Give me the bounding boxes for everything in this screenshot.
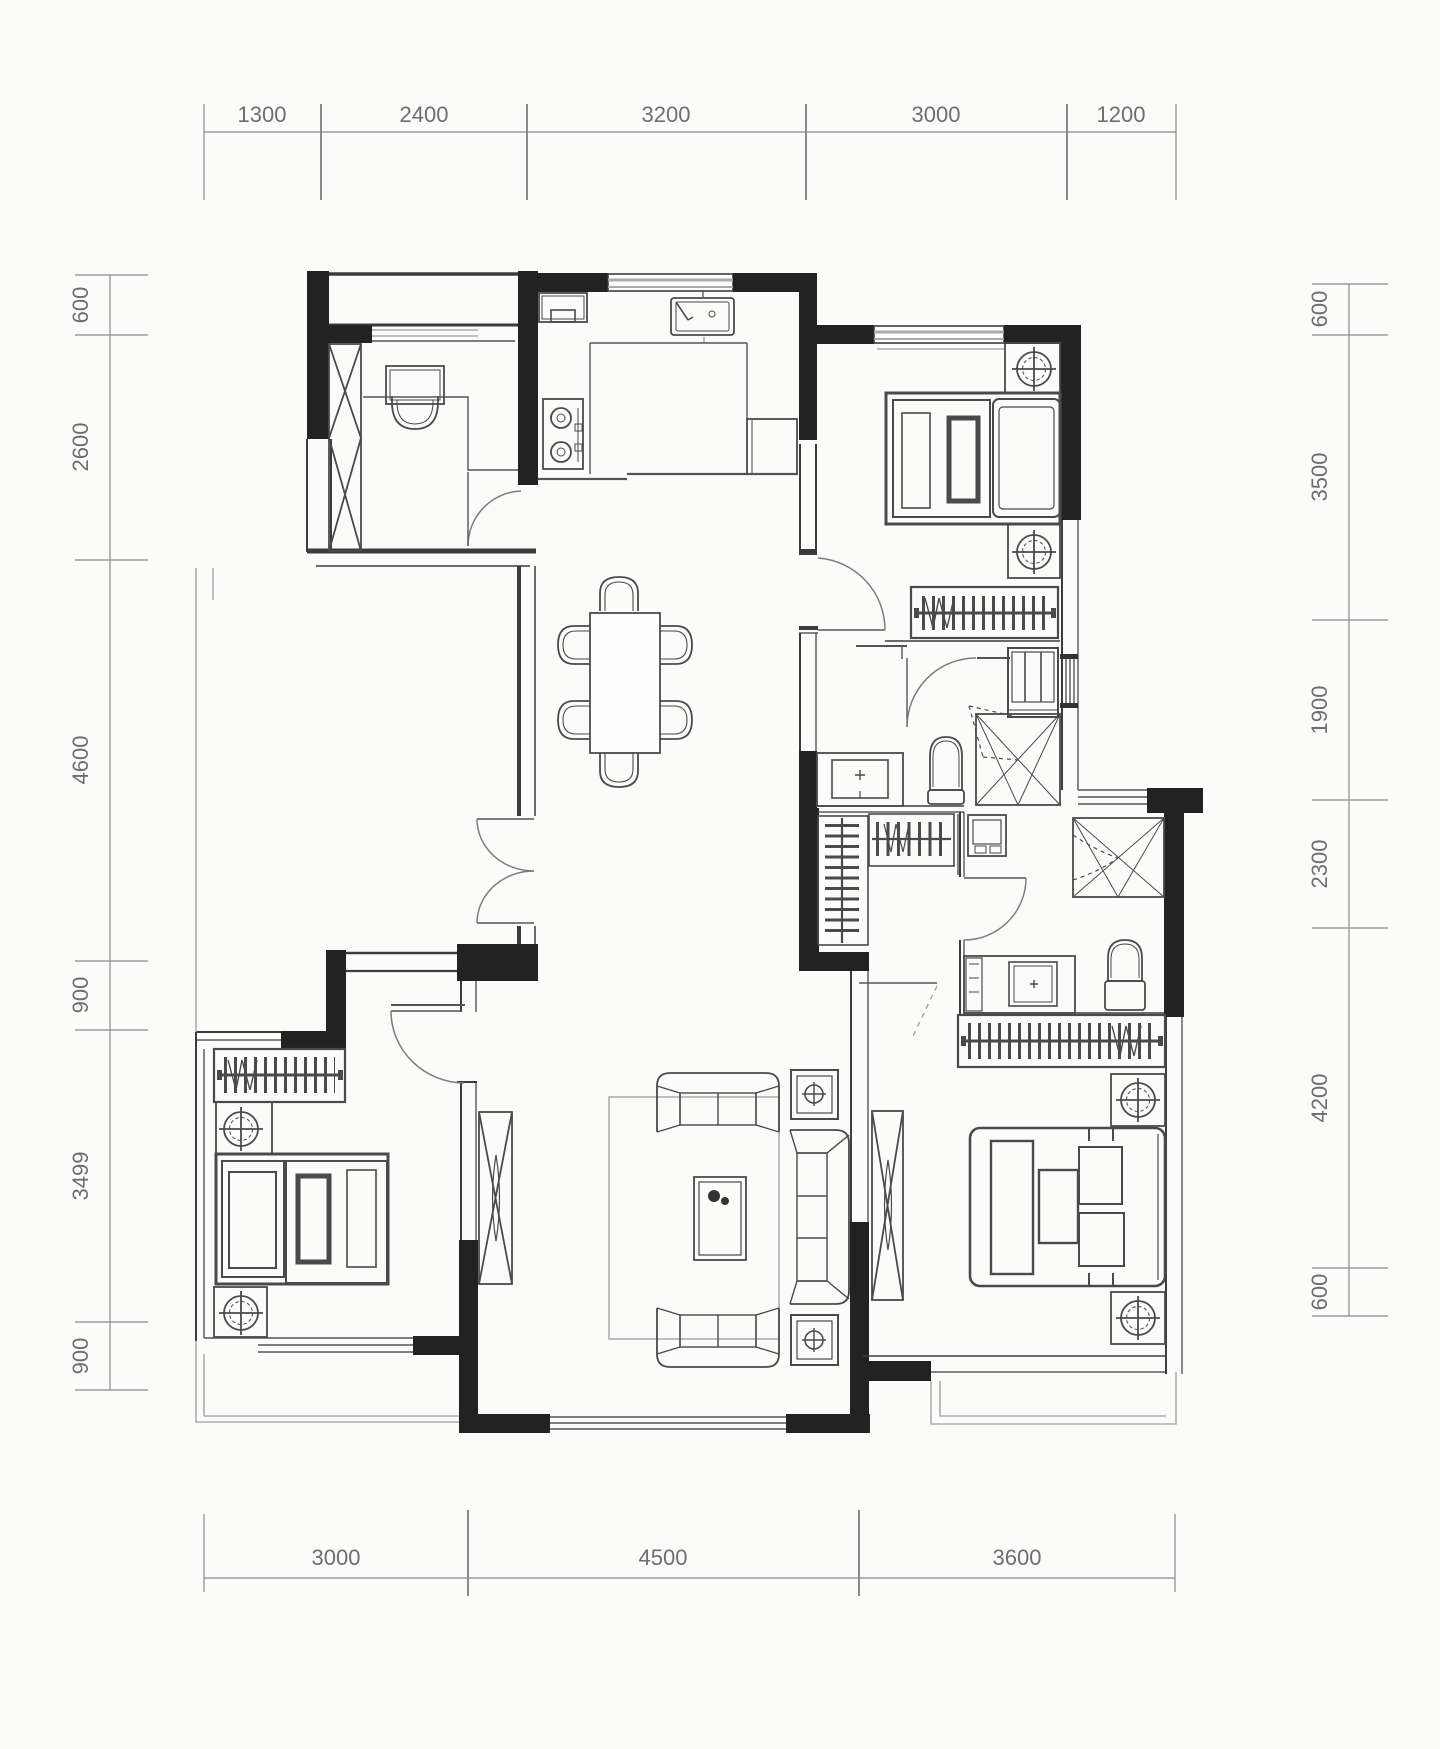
svg-text:1300: 1300 [238, 102, 287, 127]
svg-text:2300: 2300 [1307, 840, 1332, 889]
svg-text:4200: 4200 [1307, 1074, 1332, 1123]
svg-text:1200: 1200 [1097, 102, 1146, 127]
svg-text:1900: 1900 [1307, 686, 1332, 735]
svg-text:3200: 3200 [642, 102, 691, 127]
svg-text:600: 600 [68, 287, 93, 324]
svg-text:3000: 3000 [312, 1545, 361, 1570]
svg-text:900: 900 [68, 977, 93, 1014]
svg-text:2400: 2400 [400, 102, 449, 127]
svg-text:2600: 2600 [68, 423, 93, 472]
svg-text:4600: 4600 [68, 736, 93, 785]
svg-text:3499: 3499 [68, 1152, 93, 1201]
svg-text:3600: 3600 [993, 1545, 1042, 1570]
svg-text:600: 600 [1307, 291, 1332, 328]
svg-text:3000: 3000 [912, 102, 961, 127]
svg-text:600: 600 [1307, 1274, 1332, 1311]
svg-text:4500: 4500 [639, 1545, 688, 1570]
svg-text:3500: 3500 [1307, 453, 1332, 502]
svg-text:900: 900 [68, 1338, 93, 1375]
